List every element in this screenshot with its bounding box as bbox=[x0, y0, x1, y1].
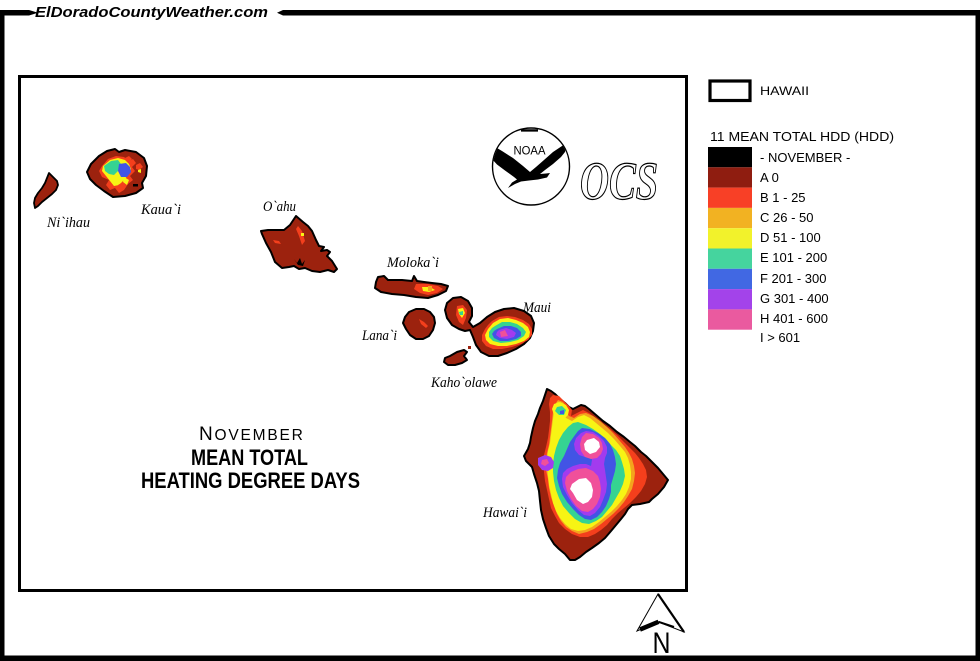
svg-text:HAWAII: HAWAII bbox=[760, 84, 809, 98]
svg-text:Lana`i: Lana`i bbox=[361, 328, 397, 344]
svg-text:E 101 - 200: E 101 - 200 bbox=[760, 250, 827, 265]
svg-text:F 201 - 300: F 201 - 300 bbox=[760, 271, 827, 286]
svg-text:Hawai`i: Hawai`i bbox=[482, 505, 527, 521]
svg-text:A 0: A 0 bbox=[760, 170, 779, 185]
svg-text:G 301 - 400: G 301 - 400 bbox=[760, 291, 829, 306]
svg-text:Kaua`i: Kaua`i bbox=[140, 202, 181, 218]
svg-text:OCS: OCS bbox=[580, 151, 658, 211]
svg-text:NOVEMBER: NOVEMBER bbox=[199, 424, 305, 445]
svg-text:H 401 - 600: H 401 - 600 bbox=[760, 311, 828, 326]
svg-text:- NOVEMBER -: - NOVEMBER - bbox=[760, 150, 850, 165]
svg-text:C 26 - 50: C 26 - 50 bbox=[760, 210, 813, 225]
svg-text:D 51 - 100: D 51 - 100 bbox=[760, 230, 821, 245]
svg-text:O`ahu: O`ahu bbox=[263, 199, 296, 215]
svg-text:NOAA: NOAA bbox=[514, 146, 546, 158]
svg-text:ElDoradoCountyWeather.com: ElDoradoCountyWeather.com bbox=[35, 5, 268, 21]
svg-text:HEATING DEGREE DAYS: HEATING DEGREE DAYS bbox=[141, 468, 360, 493]
svg-text:Ni`ihau: Ni`ihau bbox=[46, 215, 90, 231]
svg-text:MEAN TOTAL: MEAN TOTAL bbox=[191, 445, 308, 470]
svg-text:B 1 - 25: B 1 - 25 bbox=[760, 190, 806, 205]
svg-text:Moloka`i: Moloka`i bbox=[386, 255, 439, 271]
svg-text:Maui: Maui bbox=[522, 300, 551, 316]
svg-text:11 MEAN TOTAL HDD (HDD): 11 MEAN TOTAL HDD (HDD) bbox=[710, 129, 894, 144]
svg-text:I > 601: I > 601 bbox=[760, 330, 800, 345]
svg-text:Kaho`olawe: Kaho`olawe bbox=[430, 375, 497, 391]
svg-text:N: N bbox=[653, 627, 671, 660]
